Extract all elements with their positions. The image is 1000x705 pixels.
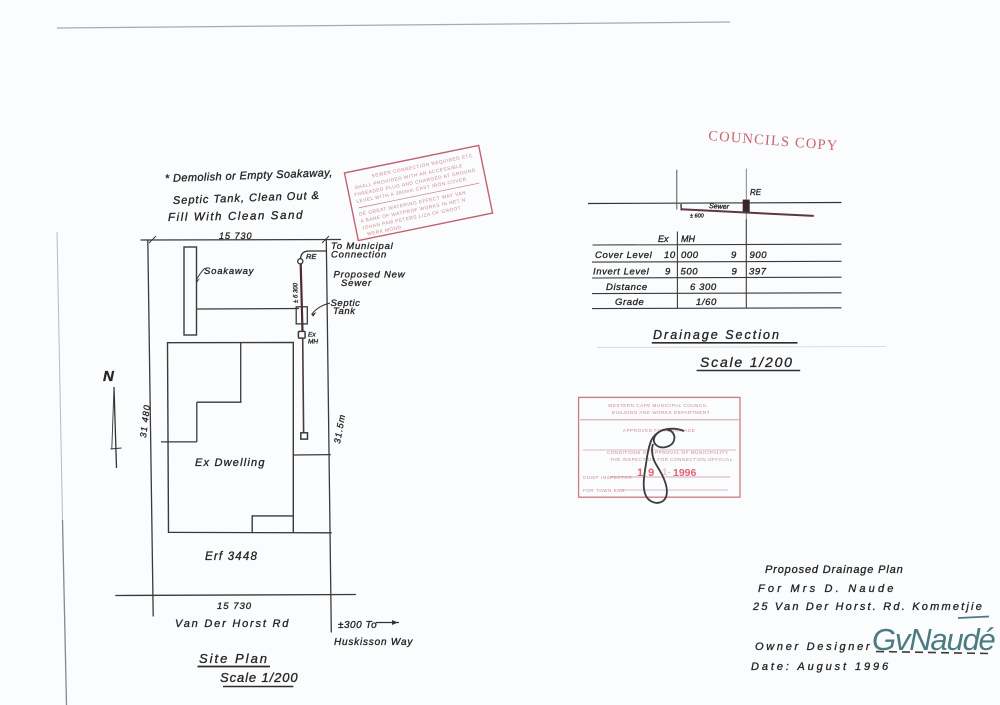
- svg-text:Scale 1/200: Scale 1/200: [700, 354, 794, 370]
- svg-text:15 730: 15 730: [219, 231, 253, 241]
- svg-text:Date: August 1996: Date: August 1996: [751, 661, 891, 673]
- svg-text:Drainage Section: Drainage Section: [653, 328, 781, 342]
- svg-text:THE INSPECTION FOR CONNECTION: THE INSPECTION FOR CONNECTION OFFICIAL: [610, 457, 733, 462]
- svg-text:FOR TOWN ENG: FOR TOWN ENG: [583, 488, 625, 493]
- svg-text:15 730: 15 730: [217, 601, 252, 612]
- svg-text:Ex: Ex: [308, 332, 316, 339]
- svg-text:1 9: 1 9: [637, 467, 655, 479]
- svg-text:Cover Level: Cover Level: [595, 250, 653, 261]
- svg-text:BUILDING AND WORKS DEPARTMENT: BUILDING AND WORKS DEPARTMENT: [612, 410, 710, 415]
- svg-text:Connection: Connection: [331, 250, 387, 261]
- svg-text:MH: MH: [681, 234, 695, 244]
- svg-text:Sewer: Sewer: [709, 203, 730, 211]
- svg-text:Soakaway: Soakaway: [204, 266, 255, 277]
- svg-text:6 300: 6 300: [690, 282, 717, 293]
- svg-text:Distance: Distance: [606, 282, 648, 293]
- svg-text:500: 500: [681, 267, 699, 278]
- svg-text:Erf 3448: Erf 3448: [205, 551, 258, 563]
- svg-text:Site Plan: Site Plan: [199, 651, 269, 666]
- svg-text:± 6 300: ± 6 300: [294, 282, 300, 303]
- svg-text:Owner Designer: Owner Designer: [755, 641, 872, 653]
- svg-text:RE: RE: [750, 188, 762, 197]
- svg-text:9: 9: [665, 267, 671, 278]
- svg-text:1996: 1996: [673, 467, 697, 479]
- svg-text:Ex Dwelling: Ex Dwelling: [195, 457, 266, 469]
- svg-text:9: 9: [731, 250, 737, 261]
- svg-text:± 600: ± 600: [690, 214, 705, 220]
- svg-text:Sewer: Sewer: [341, 278, 372, 289]
- svg-text:N: N: [103, 368, 115, 385]
- svg-text:1/60: 1/60: [696, 297, 717, 308]
- svg-text:CONDITIONS OF APPROVAL OF MUNI: CONDITIONS OF APPROVAL OF MUNICIPALITY: [607, 450, 729, 455]
- svg-text:Scale 1/200: Scale 1/200: [220, 670, 299, 685]
- svg-text:25 Van Der Horst. Rd. Kommetji: 25 Van Der Horst. Rd. Kommetjie: [752, 601, 984, 613]
- svg-text:RE: RE: [306, 252, 317, 261]
- svg-text:WESTERN CAPE MUNICIPAL COUNCIL: WESTERN CAPE MUNICIPAL COUNCIL: [608, 403, 707, 408]
- svg-text:Fill With Clean Sand: Fill With Clean Sand: [168, 210, 304, 224]
- svg-text:10: 10: [664, 250, 676, 261]
- svg-text:For Mrs D. Naude: For Mrs D. Naude: [758, 583, 897, 595]
- svg-text:MH: MH: [308, 339, 318, 346]
- svg-text:Tank: Tank: [333, 306, 356, 317]
- svg-text:CHIEF INSPECTOR: CHIEF INSPECTOR: [583, 475, 632, 480]
- svg-text:397: 397: [749, 267, 767, 278]
- svg-text:Ex: Ex: [658, 234, 669, 244]
- svg-text:900: 900: [750, 250, 768, 261]
- svg-text:Proposed Drainage Plan: Proposed Drainage Plan: [765, 564, 904, 576]
- svg-text:Invert Level: Invert Level: [593, 267, 650, 278]
- svg-text:Van Der Horst Rd: Van Der Horst Rd: [175, 618, 290, 630]
- svg-text:Grade: Grade: [615, 297, 644, 308]
- svg-text:Huskisson Way: Huskisson Way: [334, 637, 413, 648]
- svg-text:9: 9: [732, 267, 738, 278]
- svg-text:±300 To: ±300 To: [338, 620, 377, 631]
- svg-text:000: 000: [681, 250, 699, 261]
